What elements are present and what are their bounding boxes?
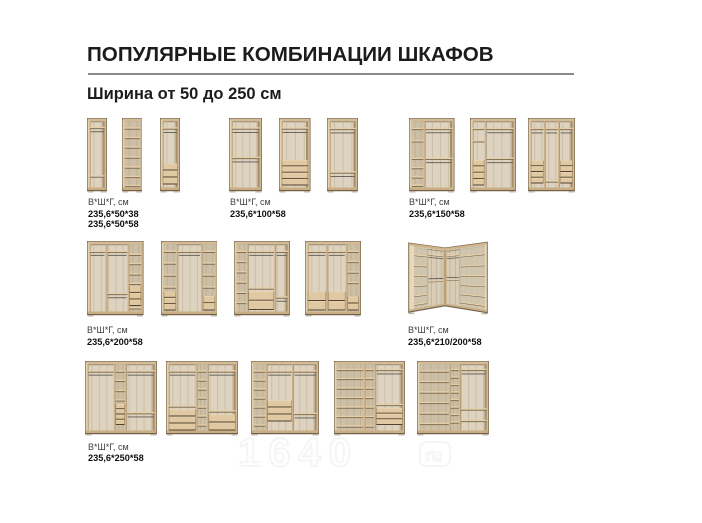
svg-text:1640: 1640 [238, 431, 359, 475]
svg-text:ru: ru [425, 446, 442, 465]
